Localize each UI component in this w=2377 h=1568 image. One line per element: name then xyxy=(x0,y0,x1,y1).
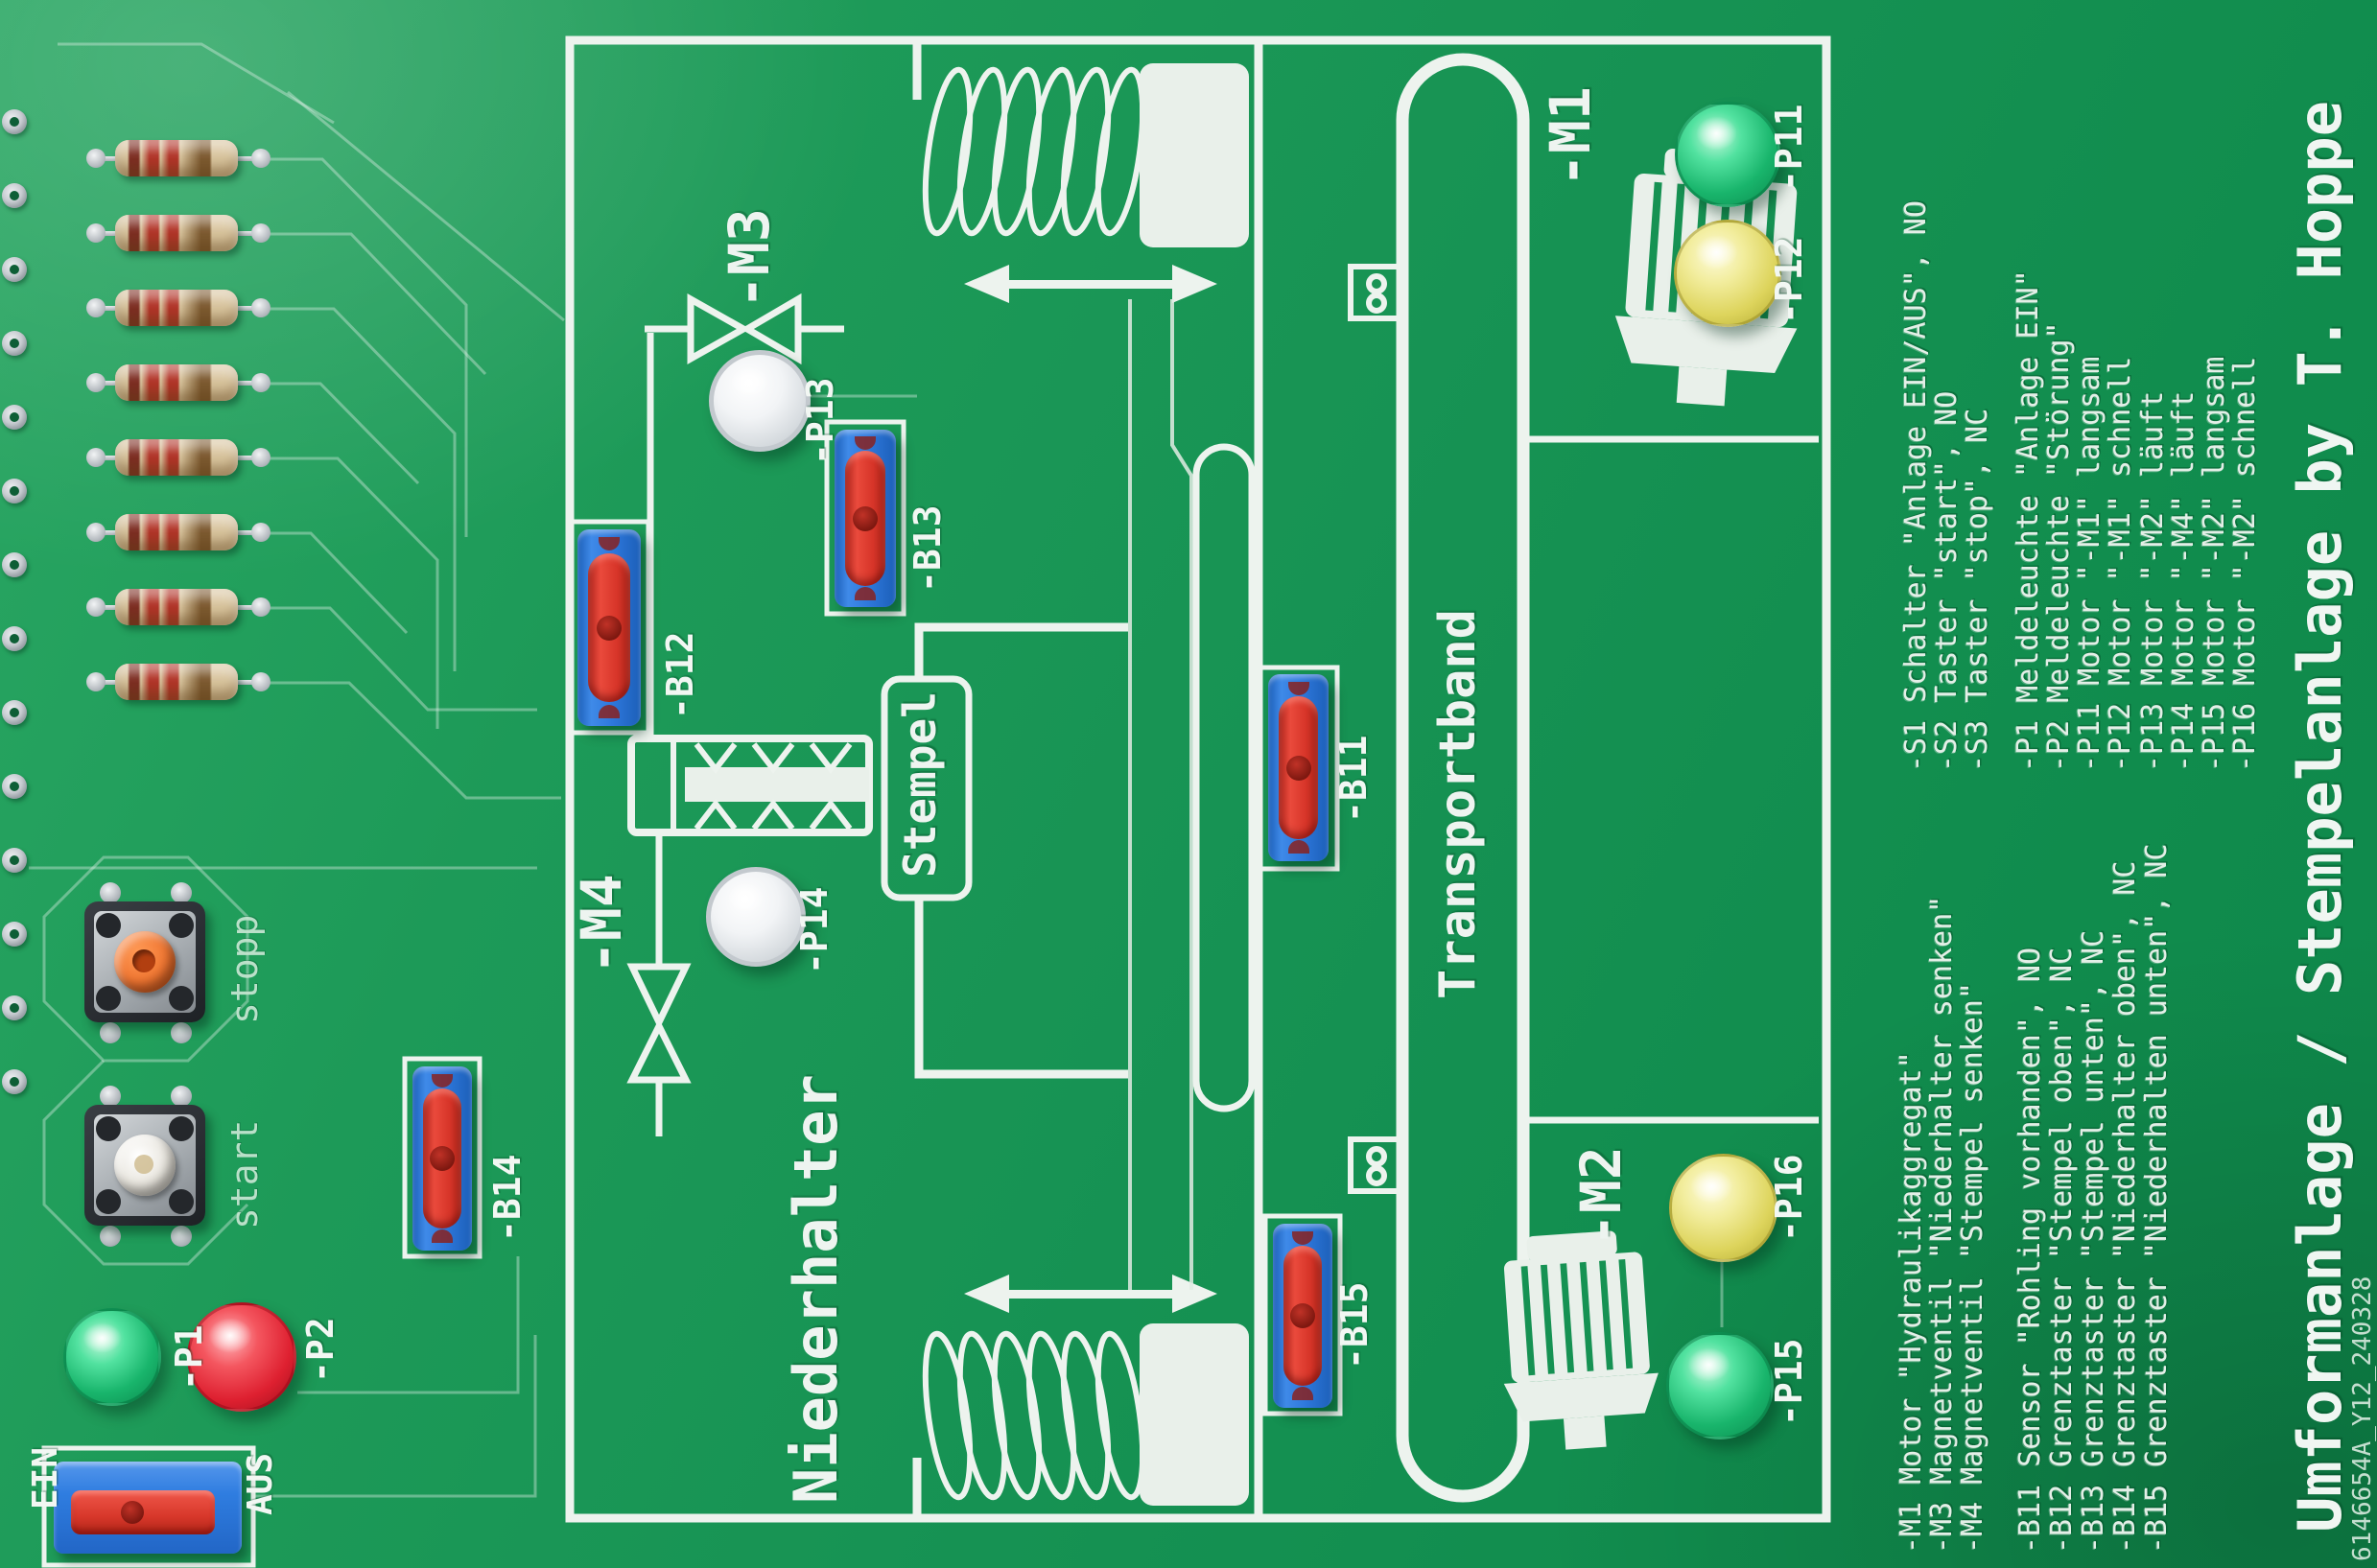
stempel-title: Stempel xyxy=(898,691,942,878)
resistor xyxy=(92,514,265,552)
led-p16 xyxy=(1669,1154,1777,1262)
led-p1 xyxy=(63,1308,161,1406)
legend-s3: -S3 Taster "stop", NC xyxy=(1964,409,1992,772)
legend-p14: -P14 Motor "-M4" läuft xyxy=(2170,391,2199,772)
niederhalter-title: Niederhalter xyxy=(787,1074,846,1504)
ram-top-icon xyxy=(1140,63,1249,247)
stop-button[interactable] xyxy=(84,890,207,1034)
led-p11 xyxy=(1675,102,1780,207)
through-hole xyxy=(2,848,27,873)
legend-p11: -P11 Motor "-M1" langsam xyxy=(2076,357,2105,772)
legend-b11: -B11 Sensor "Rohling vorhanden", NO xyxy=(2016,948,2045,1554)
legend-b14: -B14 Grenztaster "Niederhalter oben", NC xyxy=(2111,861,2140,1554)
legend-p16: -P16 Motor "-M2" schnell xyxy=(2231,357,2260,772)
belt-bracket-top xyxy=(1351,267,1402,318)
belt-bracket-bottom xyxy=(1351,1139,1402,1191)
resistor xyxy=(92,364,265,403)
led-p13 xyxy=(709,350,811,452)
workpiece-outline xyxy=(1196,447,1252,1109)
label-m3: -M3 xyxy=(721,208,777,309)
through-hole xyxy=(2,774,27,799)
ram-bottom-icon xyxy=(1140,1323,1249,1506)
motor-mount-rails xyxy=(1523,439,1819,1120)
led-p15 xyxy=(1666,1332,1774,1439)
label-m1: -M1 xyxy=(1542,86,1598,187)
resistor xyxy=(92,439,265,478)
guide-lines xyxy=(1130,299,1191,1290)
through-hole xyxy=(2,183,27,208)
led-p12 xyxy=(1674,220,1781,327)
legend-p13: -P13 Motor "-M2" läuft xyxy=(2139,391,2168,772)
through-hole xyxy=(2,626,27,651)
start-button-caption: start xyxy=(226,1120,263,1229)
sensor-b11 xyxy=(1268,674,1329,861)
through-hole xyxy=(2,109,27,134)
resistor xyxy=(92,664,265,702)
legend-b12: -B12 Grenztaster "Stempel oben", NC xyxy=(2048,948,2077,1554)
sensor-b13 xyxy=(835,430,896,607)
pcb-board: Niederhalter Transportband Stempel -M1 -… xyxy=(0,0,2377,1568)
power-switch-slider[interactable] xyxy=(71,1490,215,1534)
label-m4: -M4 xyxy=(574,874,629,974)
label-b11: -B11 xyxy=(1335,735,1372,823)
sensor-b14 xyxy=(412,1066,472,1251)
label-p16: -P16 xyxy=(1771,1154,1807,1242)
through-hole xyxy=(2,552,27,577)
legend-m4: -M4 Magnetventil "Stempel senken" xyxy=(1959,982,1988,1554)
label-p14: -P14 xyxy=(796,886,833,974)
transportband-title: Transportband xyxy=(1433,609,1483,999)
label-b12: -B12 xyxy=(662,631,698,719)
switch-off-caption: AUS xyxy=(244,1453,278,1515)
resistor xyxy=(92,589,265,627)
cylinder-icon xyxy=(631,738,869,832)
arrow-bottom-icon xyxy=(964,1275,1217,1313)
legend-p12: -P12 Motor "-M1" schnell xyxy=(2106,357,2135,772)
resistor xyxy=(92,140,265,178)
stempel-connectors xyxy=(919,627,1128,1074)
led-p14 xyxy=(706,867,806,967)
label-p11: -P11 xyxy=(1771,104,1807,192)
stop-button-caption: stopp xyxy=(226,915,263,1024)
start-button-cap[interactable] xyxy=(114,1135,176,1196)
legend-s1: -S1 Schalter "Anlage EIN/AUS", NO xyxy=(1902,200,1931,772)
label-p2: -P2 xyxy=(302,1317,339,1383)
resistor xyxy=(92,290,265,328)
through-hole xyxy=(2,257,27,282)
through-hole xyxy=(2,922,27,947)
through-hole xyxy=(2,405,27,430)
label-b13: -B13 xyxy=(909,504,946,593)
sensor-b15 xyxy=(1273,1224,1332,1408)
legend-s2: -S2 Taster "start", NO xyxy=(1933,391,1962,772)
board-title: Umformanlage / Stempelanlage by T. Hoppe xyxy=(2291,101,2350,1533)
label-p15: -P15 xyxy=(1771,1338,1807,1426)
through-hole xyxy=(2,995,27,1020)
legend-m3: -M3 Magnetventil "Niederhalter senken" xyxy=(1928,896,1957,1554)
label-p12: -P12 xyxy=(1771,236,1807,324)
label-b15: -B15 xyxy=(1336,1281,1373,1369)
board-serial: 6146654A_Y12_240328 xyxy=(2350,1276,2375,1561)
through-hole xyxy=(2,479,27,503)
legend-p15: -P15 Motor "-M2" langsam xyxy=(2200,357,2229,772)
through-hole xyxy=(2,700,27,725)
legend-b13: -B13 Grenztaster "Stempel unten", NC xyxy=(2080,930,2108,1554)
legend-p1: -P1 Meldeleuchte "Anlage EIN" xyxy=(2014,269,2043,772)
sensor-b12 xyxy=(577,529,641,726)
resistor xyxy=(92,215,265,253)
label-p1: -P1 xyxy=(171,1324,207,1391)
stop-button-cap[interactable] xyxy=(114,931,176,993)
arrow-top-icon xyxy=(964,265,1217,303)
through-hole xyxy=(2,1069,27,1094)
legend-b15: -B15 Grenztaster "Niederhalten unten", N… xyxy=(2143,843,2172,1554)
spring-top-icon xyxy=(917,67,1151,236)
spring-bottom-icon xyxy=(917,1331,1151,1500)
valve-m4-icon xyxy=(632,832,686,1136)
power-switch[interactable] xyxy=(54,1462,242,1554)
legend-m1: -M1 Motor "Hydraulikaggregat" xyxy=(1897,1051,1926,1554)
start-button[interactable] xyxy=(84,1093,207,1237)
switch-on-caption: EIN xyxy=(29,1447,63,1509)
label-p13: -P13 xyxy=(802,377,838,465)
through-hole xyxy=(2,331,27,356)
legend-p2: -P2 Meldeleuchte "Störung" xyxy=(2045,321,2074,772)
label-m2: -M2 xyxy=(1573,1146,1629,1247)
label-b14: -B14 xyxy=(489,1154,526,1242)
